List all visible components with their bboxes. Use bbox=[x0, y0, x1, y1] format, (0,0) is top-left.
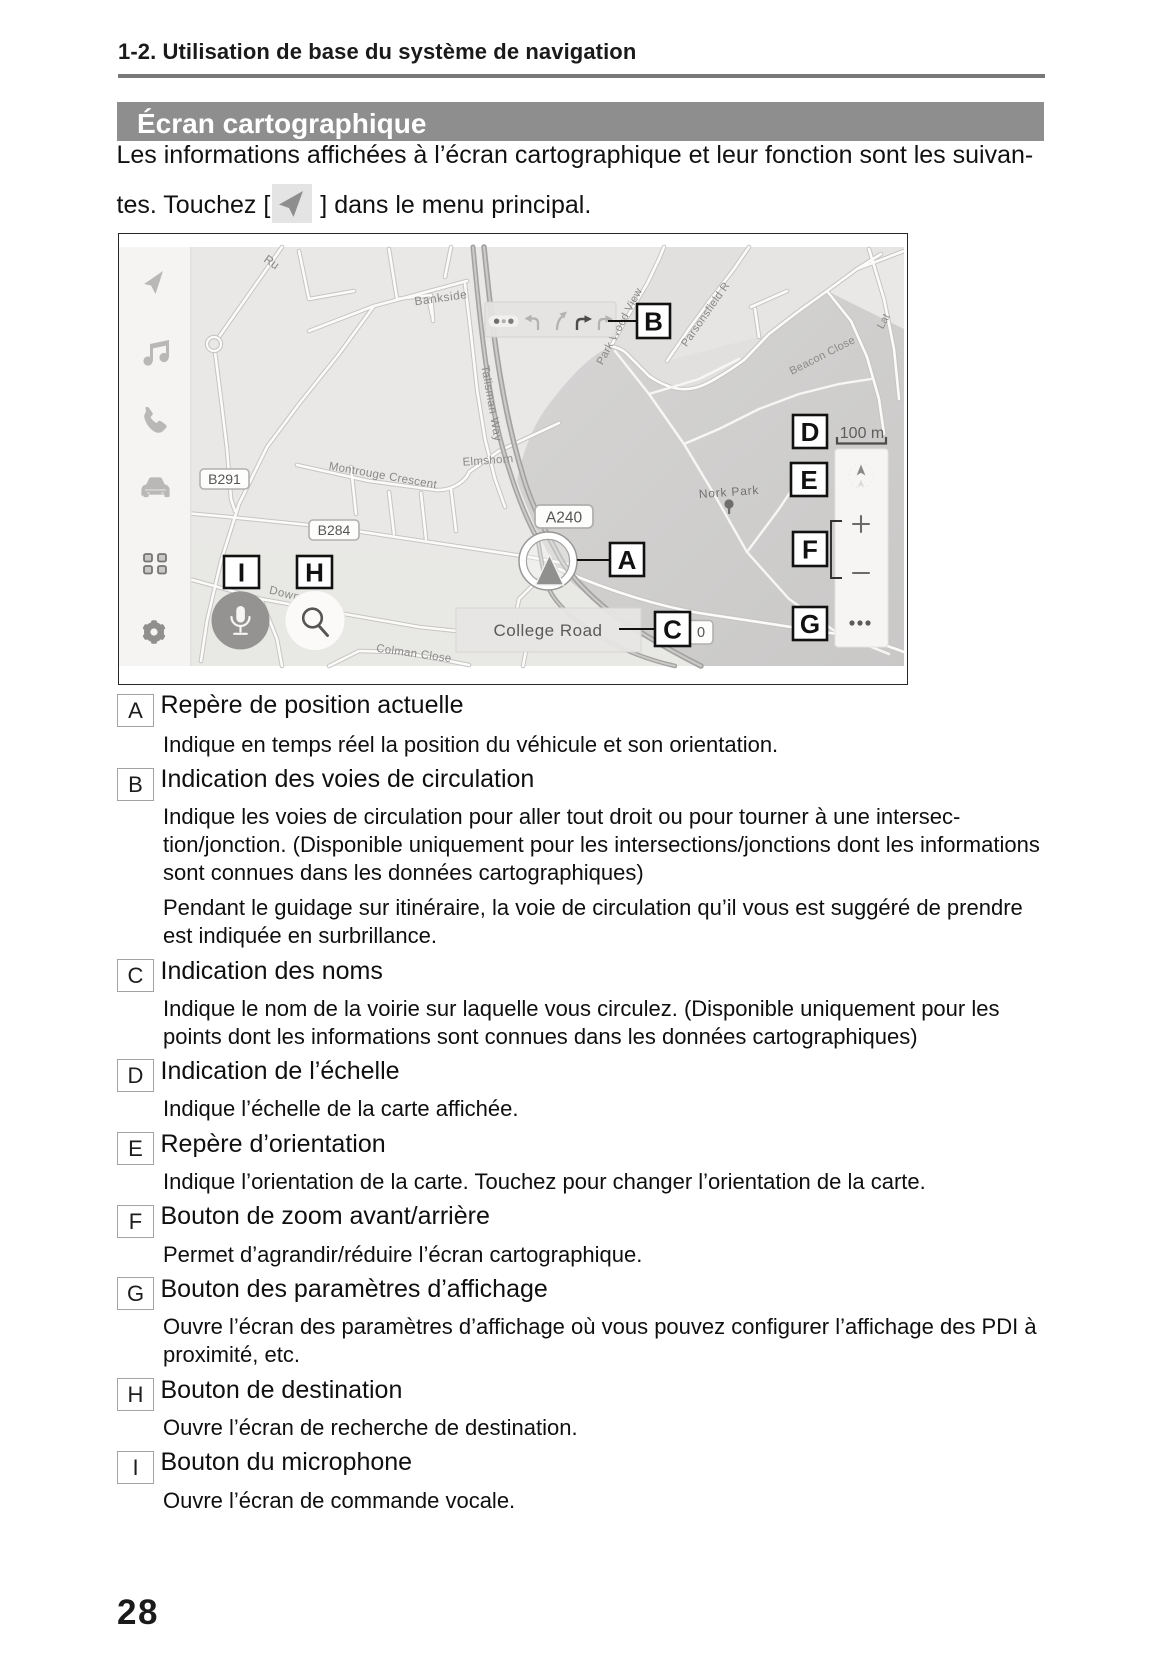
svg-text:A240: A240 bbox=[546, 510, 583, 527]
svg-text:College Road: College Road bbox=[493, 621, 602, 640]
svg-text:G: G bbox=[800, 609, 820, 639]
svg-text:B284: B284 bbox=[318, 522, 351, 538]
svg-text:E: E bbox=[800, 465, 817, 495]
svg-text:H: H bbox=[305, 558, 324, 588]
svg-text:I: I bbox=[238, 558, 245, 588]
svg-text:100 m: 100 m bbox=[840, 425, 884, 442]
svg-text:A: A bbox=[618, 545, 637, 575]
svg-text:B: B bbox=[644, 307, 663, 337]
svg-text:B291: B291 bbox=[208, 471, 241, 487]
svg-text:0: 0 bbox=[697, 625, 705, 641]
svg-text:F: F bbox=[802, 535, 818, 565]
svg-text:C: C bbox=[663, 615, 682, 645]
svg-text:D: D bbox=[801, 417, 820, 447]
